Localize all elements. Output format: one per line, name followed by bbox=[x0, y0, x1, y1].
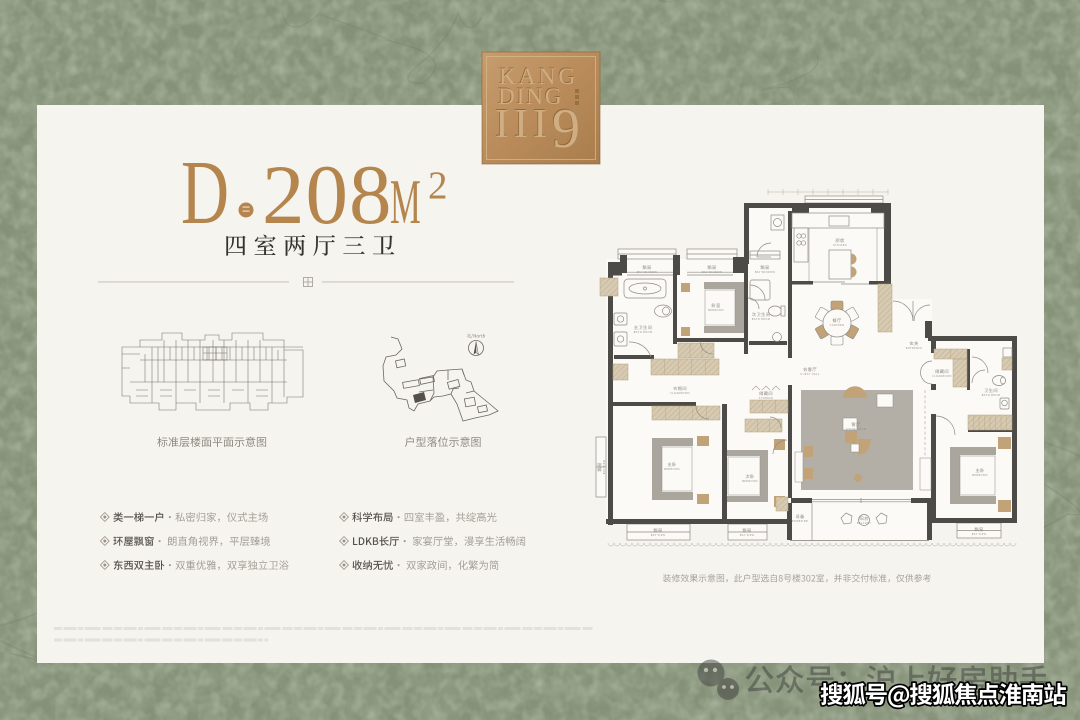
svg-text:M: M bbox=[390, 167, 421, 236]
svg-text:III: III bbox=[495, 100, 552, 146]
svg-text:208: 208 bbox=[262, 148, 393, 242]
svg-text:D: D bbox=[181, 143, 229, 244]
svg-text:2: 2 bbox=[428, 164, 448, 207]
svg-text:9: 9 bbox=[552, 98, 580, 160]
